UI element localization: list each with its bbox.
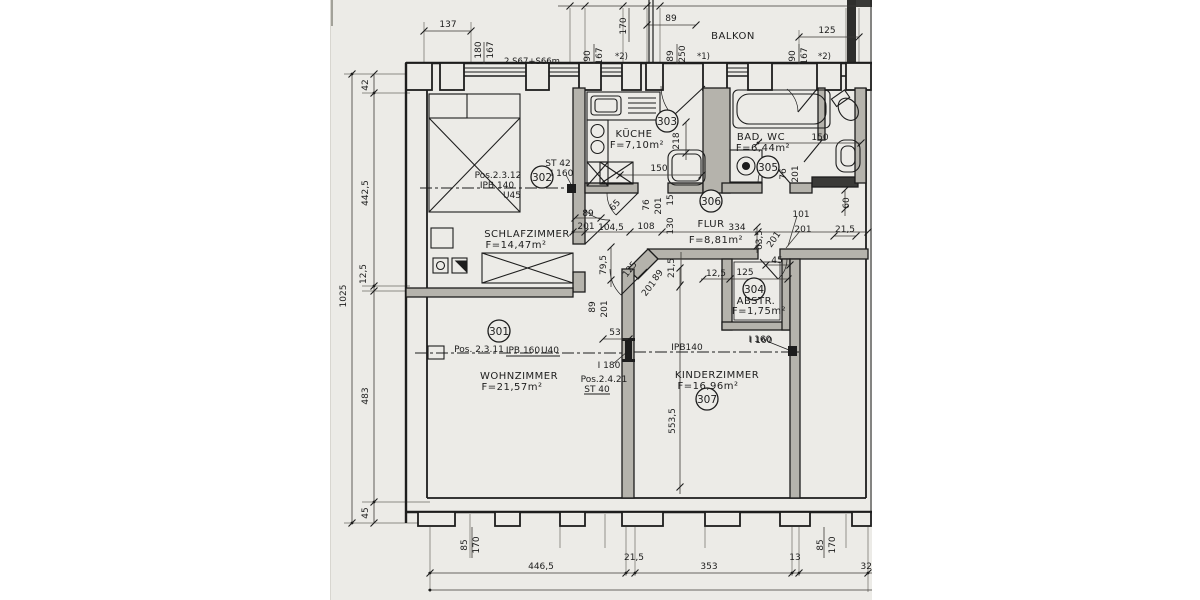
dim-85a: 85	[460, 539, 470, 550]
dim-167b: 167	[595, 47, 605, 64]
tuersturz-i: I 180	[598, 361, 621, 371]
flur-name: FLUR	[697, 219, 724, 230]
balcony-end-wall	[847, 0, 856, 64]
bad-area: F=6,44m²	[736, 143, 790, 154]
room-nr-303: 303	[657, 116, 677, 128]
kinderzimmer-area: F=16,96m²	[677, 381, 738, 392]
room-nr-307: 307	[697, 394, 717, 406]
dim-201-wand: 201	[600, 300, 610, 317]
note-2b: *2)	[818, 52, 831, 62]
wohnzimmer-area: F=21,57m²	[481, 382, 542, 393]
schlafzimmer-beam: IPB 140	[480, 181, 515, 191]
wohnzimmer-pos: Pos. 2.3.11	[454, 345, 504, 355]
dim-170a: 170	[472, 536, 482, 553]
kinderzimmer-lintel: I 160	[750, 336, 773, 346]
dim-76-kueche: 76	[642, 199, 652, 211]
dim-12-5-abstr: 12,5	[706, 269, 726, 279]
dim-125-abstr: 125	[736, 268, 753, 278]
dim-250: 250	[678, 45, 688, 62]
dim-167a: 167	[486, 41, 496, 58]
note-1: *1)	[697, 52, 710, 62]
dim-63-5: 63,5	[755, 230, 765, 250]
dim-334: 334	[728, 223, 745, 233]
schlafzimmer-u: U45	[503, 191, 521, 201]
dim-201-kueche: 201	[654, 197, 664, 214]
note-2a: *2)	[615, 52, 628, 62]
dim-150-bad: 150	[811, 133, 828, 143]
dim-89-flur: 89	[582, 209, 594, 219]
dim-45-abstr: 45	[771, 256, 782, 266]
dim-137: 137	[439, 20, 456, 30]
schlafzimmer-pos: Pos.2.3.12	[475, 171, 522, 181]
dim-442-5: 442,5	[361, 180, 371, 206]
dim-60: 60	[842, 197, 852, 209]
dim-79-5: 79,5	[599, 255, 609, 275]
dim-167c: 167	[800, 47, 810, 64]
room-nr-301: 301	[489, 326, 509, 338]
dim-85b: 85	[816, 539, 826, 550]
dim-90b: 90	[788, 50, 798, 62]
dim-446-5: 446,5	[528, 562, 554, 572]
dim-21-5-bottom: 21,5	[624, 553, 644, 563]
dim-180: 180	[474, 41, 484, 58]
room-nr-305: 305	[758, 162, 778, 174]
room-nr-304: 304	[744, 284, 764, 296]
schlafzimmer-st: ST 42	[545, 159, 571, 169]
dim-1025: 1025	[339, 285, 349, 308]
dim-101: 101	[792, 210, 809, 220]
room-nr-306: 306	[701, 196, 721, 208]
dim-89-balcony: 89	[665, 14, 677, 24]
kueche-name: KÜCHE	[616, 127, 653, 140]
tuersturz-pos: Pos.2.4.21	[581, 375, 628, 385]
dim-21-5-diag: 21,5	[667, 258, 677, 278]
floor-plan-drawing: BALKON 137 180 167 2 S67+S66m 170 89 125…	[0, 0, 1200, 600]
dim-45-left: 45	[361, 507, 371, 518]
dim-76-bad: 76	[779, 168, 789, 180]
dim-201-flur: 201	[577, 222, 594, 232]
dim-12-5-left: 12,5	[359, 264, 369, 284]
balcony-label: BALKON	[711, 31, 755, 42]
tuersturz-st: ST 40	[584, 385, 610, 395]
dim-553-5: 553,5	[668, 408, 678, 434]
dim-353: 353	[700, 562, 717, 572]
dim-89-wand: 89	[588, 301, 598, 313]
kueche-area: F=7,10m²	[610, 140, 664, 151]
dim-130: 130	[666, 217, 676, 234]
dim-150-kueche: 150	[650, 164, 667, 174]
dim-108: 108	[637, 222, 654, 232]
abstr-area: F=1,75m²	[732, 306, 786, 317]
dim-15: 15	[666, 194, 676, 205]
flur-area: F=8,81m²	[689, 235, 743, 246]
note-s67: 2 S67+S66m	[504, 57, 560, 67]
room-nr-302: 302	[532, 172, 552, 184]
wohnzimmer-beam: IPB 160	[506, 346, 541, 356]
dim-201b: 201	[794, 225, 811, 235]
dim-32-cut: 32	[861, 562, 872, 572]
wohnzimmer-u: U40	[541, 346, 559, 356]
dim-218: 218	[672, 132, 682, 149]
bad-name: BAD, WC	[737, 132, 785, 143]
dim-90a: 90	[583, 50, 593, 62]
dim-201-bad: 201	[791, 165, 801, 182]
dim-483: 483	[361, 387, 371, 404]
steel-column-marker	[625, 340, 632, 360]
wohnzimmer-name: WOHNZIMMER	[480, 371, 558, 382]
dim-104-5: 104,5	[598, 223, 624, 233]
floor-plan-page: { "drawing_note": "2 S67+S66m", "rooms":…	[0, 0, 1200, 600]
dim-21-5-entry: 21,5	[835, 225, 855, 235]
dim-53: 53	[609, 328, 620, 338]
schlafzimmer-i: I 160	[551, 169, 574, 179]
schlafzimmer-area: F=14,47m²	[485, 240, 546, 251]
lintel-marker	[788, 346, 797, 356]
kinderzimmer-beam: IPB140	[671, 343, 703, 353]
dim-170b: 170	[828, 536, 838, 553]
dim-13: 13	[789, 553, 800, 563]
dim-89b: 89	[666, 50, 676, 62]
dim-42: 42	[361, 79, 371, 90]
schlafzimmer-name: SCHLAFZIMMER	[484, 229, 570, 240]
kinderzimmer-name: KINDERZIMMER	[675, 370, 759, 381]
dim-125-balcony: 125	[818, 26, 835, 36]
dim-170: 170	[619, 17, 629, 34]
